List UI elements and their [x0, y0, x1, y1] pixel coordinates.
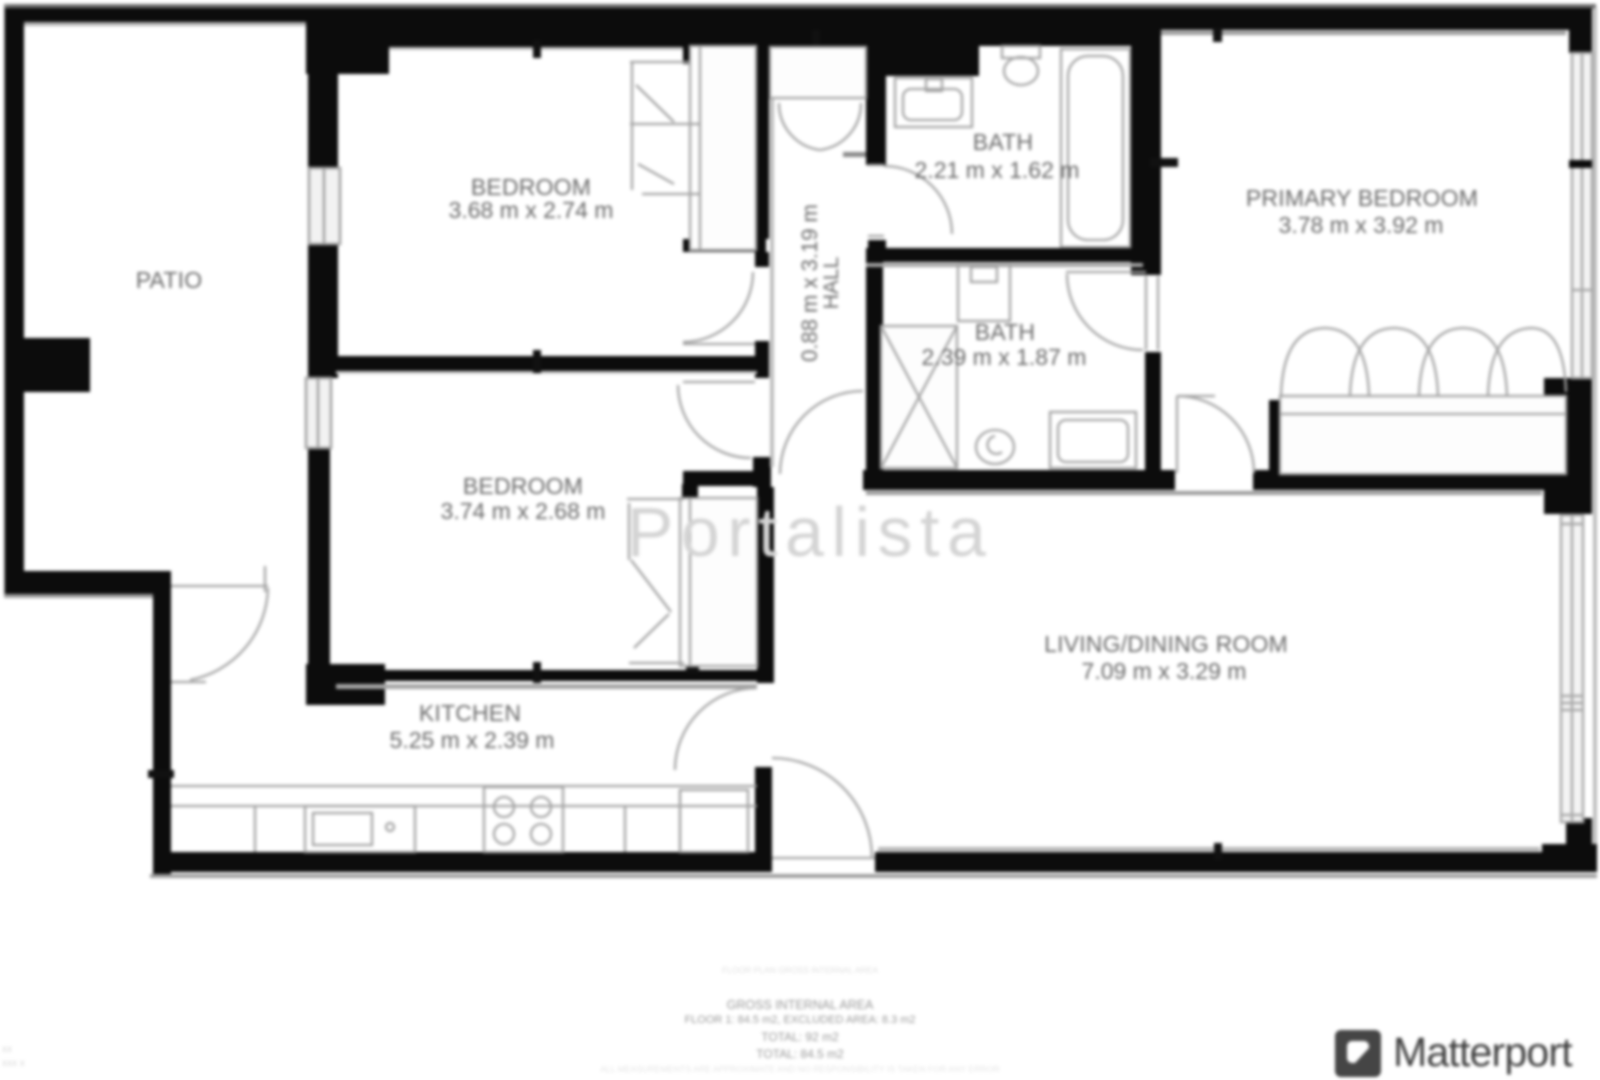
svg-text:PRIMARY BEDROOM: PRIMARY BEDROOM [1246, 185, 1478, 211]
svg-text:0.88 m x 3.19 m: 0.88 m x 3.19 m [797, 204, 822, 362]
svg-text:BATH: BATH [975, 319, 1035, 345]
svg-text:3.68 m x 2.74 m: 3.68 m x 2.74 m [449, 197, 614, 223]
svg-text:2.39 m x 1.87 m: 2.39 m x 1.87 m [922, 344, 1087, 370]
svg-text:FLOOR PLAN GROSS INTERNAL AREA: FLOOR PLAN GROSS INTERNAL AREA [722, 965, 878, 975]
svg-text:FLOOR 1: 84.5 m2, EXCLUDED ARE: FLOOR 1: 84.5 m2, EXCLUDED AREA: 8.3 m2 [684, 1014, 915, 1026]
svg-text:GROSS INTERNAL AREA: GROSS INTERNAL AREA [727, 998, 874, 1012]
svg-text:PATIO: PATIO [136, 267, 203, 293]
svg-text:BATH: BATH [973, 129, 1033, 155]
svg-text:xxx x: xxx x [2, 1058, 25, 1069]
svg-text:HALL: HALL [820, 257, 843, 310]
svg-text:Matterport: Matterport [1393, 1029, 1573, 1075]
svg-text:KITCHEN: KITCHEN [419, 700, 521, 726]
svg-text:TOTAL: 92 m2: TOTAL: 92 m2 [761, 1030, 839, 1044]
svg-text:Portalista: Portalista [627, 493, 994, 571]
svg-text:TOTAL: 84.5 m2: TOTAL: 84.5 m2 [756, 1047, 844, 1061]
svg-text:BEDROOM: BEDROOM [463, 473, 583, 499]
svg-text:xx: xx [2, 1044, 12, 1055]
svg-text:2.21 m x 1.62 m: 2.21 m x 1.62 m [915, 157, 1080, 183]
svg-text:5.25 m x 2.39 m: 5.25 m x 2.39 m [390, 727, 555, 753]
svg-text:3.74 m x 2.68 m: 3.74 m x 2.68 m [441, 498, 606, 524]
svg-text:3.78 m x 3.92 m: 3.78 m x 3.92 m [1279, 212, 1444, 238]
svg-text:ALL MEASUREMENTS ARE APPROXIMA: ALL MEASUREMENTS ARE APPROXIMATE AND NO … [600, 1064, 1000, 1074]
svg-text:7.09 m x 3.29 m: 7.09 m x 3.29 m [1082, 658, 1247, 684]
svg-text:LIVING/DINING ROOM: LIVING/DINING ROOM [1044, 631, 1288, 657]
